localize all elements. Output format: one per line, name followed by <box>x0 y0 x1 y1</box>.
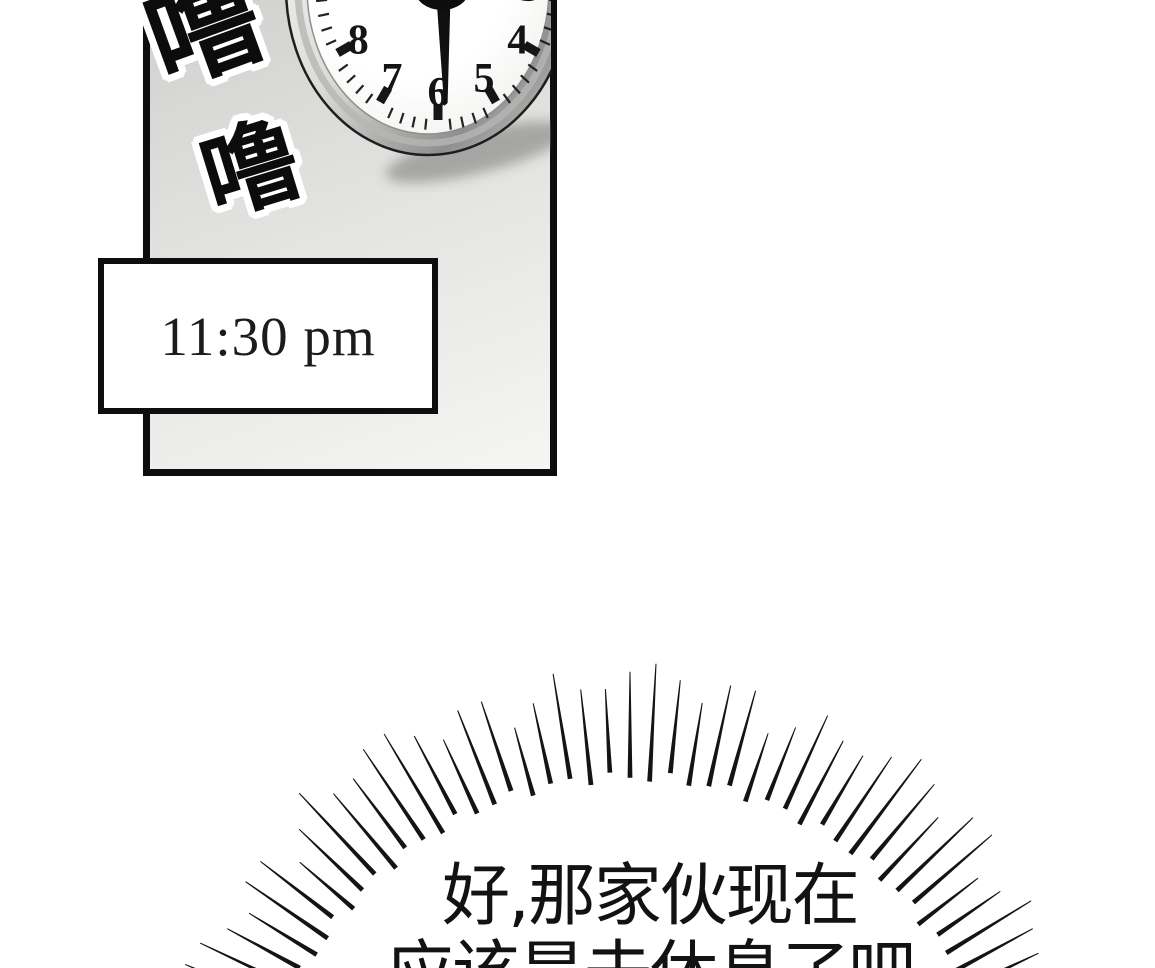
svg-text:5: 5 <box>474 56 495 102</box>
dialog-line-2: 应该是去休息了吧 <box>386 935 914 968</box>
time-caption: 11:30 pm <box>160 305 375 368</box>
manhwa-page: 345678 噜 噜 11:30 pm 好,那家伙现在 应该是去休息了吧 <box>0 0 1155 968</box>
svg-text:7: 7 <box>382 56 403 102</box>
wall-clock-illustration: 345678 <box>270 0 551 192</box>
focus-lines-sunburst <box>0 0 1155 968</box>
time-caption-box: 11:30 pm <box>98 258 438 414</box>
svg-text:8: 8 <box>348 18 369 64</box>
svg-text:4: 4 <box>507 18 528 64</box>
svg-text:3: 3 <box>520 0 541 11</box>
dialog-line-1: 好,那家伙现在 <box>386 858 914 935</box>
dialog-text: 好,那家伙现在 应该是去休息了吧 <box>386 858 914 968</box>
